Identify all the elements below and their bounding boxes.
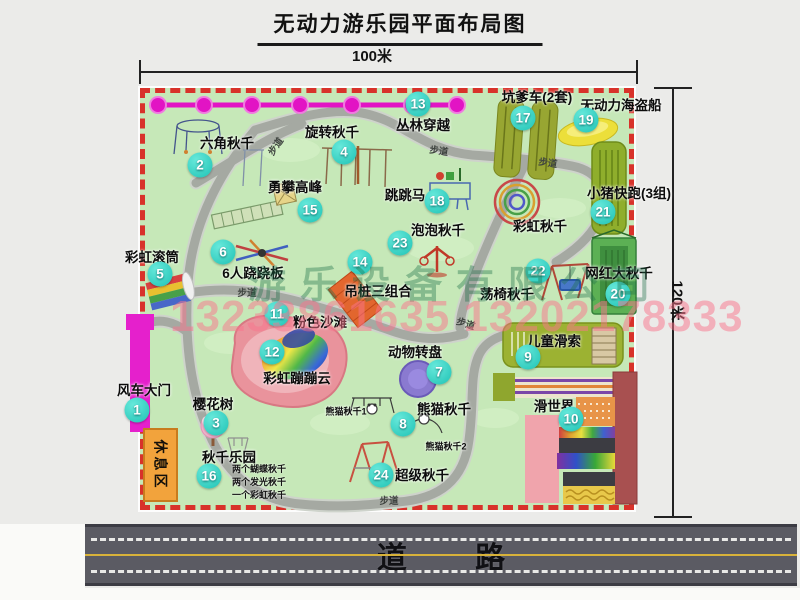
label-climbing-peak: 勇攀高峰 [268, 176, 322, 196]
marker-10: 10 [559, 407, 584, 432]
label-swing-chair: 荡椅秋千 [480, 283, 534, 303]
marker-13: 13 [406, 92, 431, 117]
marker-18: 18 [425, 189, 450, 214]
marker-16: 16 [197, 464, 222, 489]
label-pink-beach: 粉色沙滩 [293, 311, 347, 331]
swing-paradise-note-3: 一个彩虹秋千 [232, 488, 286, 501]
road-lane-line [91, 570, 791, 573]
label-windmill-gate: 风车大门 [117, 379, 171, 399]
dimension-tick-top [654, 87, 692, 89]
label-jungle-crossing: 丛林穿越 [396, 114, 450, 134]
marker-24: 24 [369, 463, 394, 488]
label-hanging-pile: 吊桩三组合 [344, 280, 412, 300]
marker-11: 11 [265, 302, 290, 327]
label-big-swing: 网红大秋千 [585, 262, 653, 282]
park-area: 休息区 风车大门 六角秋千 樱花树 旋转秋千 彩虹滚筒 6人跷跷板 动物转盘 熊… [140, 88, 634, 510]
marker-6: 6 [211, 240, 236, 265]
label-rainbow-swing: 彩虹秋千 [513, 215, 567, 235]
marker-9: 9 [516, 345, 541, 370]
dimension-height-label: 120米 [668, 280, 689, 320]
label-super-swing: 超级秋千 [395, 464, 449, 484]
dimension-line-top [140, 71, 637, 73]
label-panda-swing-2: 熊猫秋千2 [425, 440, 466, 453]
road-center-line [85, 554, 797, 556]
marker-12: 12 [260, 340, 285, 365]
slide-world-icon [493, 372, 637, 504]
rest-area-label: 休息区 [151, 440, 171, 491]
dimension-tick-left [139, 60, 141, 84]
footpath-label: 步道 [379, 493, 398, 507]
marker-23: 23 [388, 231, 413, 256]
marker-7: 7 [427, 360, 452, 385]
label-seesaw: 6人跷跷板 [222, 262, 284, 282]
marker-17: 17 [511, 106, 536, 131]
marker-8: 8 [391, 412, 416, 437]
marker-15: 15 [298, 198, 323, 223]
park-canvas: 休息区 风车大门 六角秋千 樱花树 旋转秋千 彩虹滚筒 6人跷跷板 动物转盘 熊… [140, 88, 634, 510]
marker-2: 2 [188, 153, 213, 178]
bottom-spacer [0, 588, 800, 600]
footpath-label: 步道 [237, 285, 256, 299]
marker-3: 3 [204, 411, 229, 436]
rest-area-box: 休息区 [143, 428, 178, 502]
marker-22: 22 [526, 259, 551, 284]
marker-5: 5 [148, 262, 173, 287]
label-panda-swing: 熊猫秋千 [417, 398, 471, 418]
marker-21: 21 [591, 200, 616, 225]
road: 道 路 [85, 524, 797, 586]
page-title: 无动力游乐园平面布局图 [258, 8, 543, 46]
marker-20: 20 [606, 282, 631, 307]
footpath-label: 步道 [538, 154, 559, 171]
label-panda-swing-1: 熊猫秋千1 [325, 405, 366, 418]
marker-4: 4 [332, 140, 357, 165]
road-lane-line [91, 538, 791, 541]
label-pit-cars: 坑爹车(2套) [502, 86, 573, 106]
dimension-tick-right [636, 60, 638, 84]
label-jumping-horse: 跳跳马 [385, 184, 426, 204]
footpath-label: 步道 [429, 142, 450, 159]
label-animal-carousel: 动物转盘 [388, 341, 442, 361]
dimension-width-label: 100米 [352, 45, 392, 66]
label-hex-swing: 六角秋千 [200, 132, 254, 152]
swing-paradise-note-1: 两个蝴蝶秋千 [232, 462, 286, 475]
marker-1: 1 [125, 398, 150, 423]
label-rotating-swing: 旋转秋千 [305, 121, 359, 141]
label-bubble-swing: 泡泡秋千 [411, 219, 465, 239]
label-bouncing-cloud: 彩虹蹦蹦云 [263, 367, 331, 387]
marker-14: 14 [348, 250, 373, 275]
marker-19: 19 [574, 108, 599, 133]
dimension-tick-bottom [654, 516, 692, 518]
swing-paradise-note-2: 两个发光秋千 [232, 475, 286, 488]
